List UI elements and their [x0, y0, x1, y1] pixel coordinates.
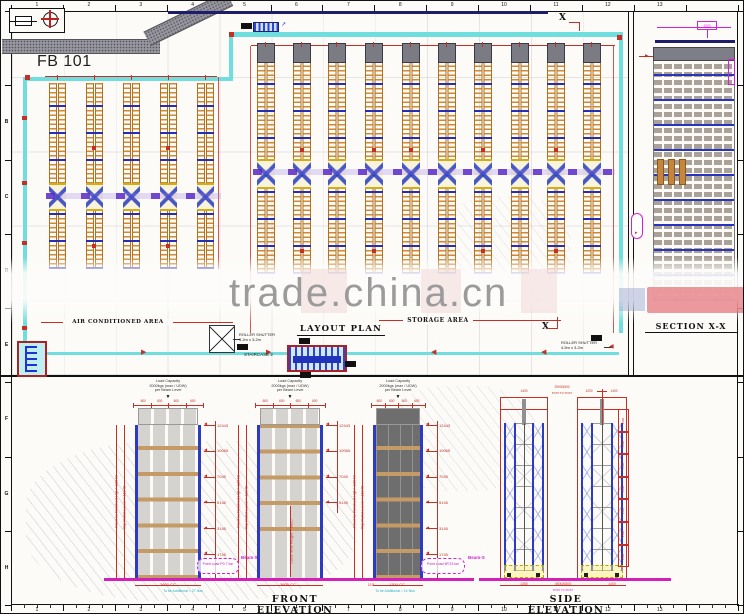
- ruler-letter-left: C: [3, 194, 10, 200]
- detail-symbol-line: [10, 21, 37, 22]
- staircase-2-rail: [293, 356, 341, 363]
- crosshair-icon: [43, 12, 58, 27]
- storage-rack-cap: [474, 43, 492, 63]
- roof-line: [168, 11, 548, 14]
- front-rack: [373, 425, 423, 579]
- tag-chip: [300, 372, 311, 378]
- level-dim-arrow-icon: ◀: [204, 474, 207, 478]
- top-dim-tick: [412, 403, 413, 408]
- level-dim-arrow-icon: ◀: [426, 526, 429, 530]
- top-dim-tick: [151, 403, 152, 408]
- height-dim-text: Top Pallet Level ≈ 11948: [244, 443, 249, 573]
- ruler-number-top: 10: [498, 2, 510, 8]
- level-dim-label: 5145: [339, 500, 348, 505]
- side-top-note: POST TO POST: [544, 391, 580, 395]
- base-post: [615, 573, 619, 577]
- wall-top-storage: [231, 32, 623, 37]
- level-dim-label: 12443: [339, 423, 350, 428]
- ruler-tick-bottom: [11, 604, 12, 611]
- rack-dim-tick: [168, 75, 169, 80]
- level-dim-label: 7045: [339, 474, 348, 479]
- cad-drawing-sheet: FB 101 AIR CONDITIONED AREA LAYOUT PLAN …: [0, 0, 744, 614]
- ac-area-label: AIR CONDITIONED AREA: [63, 319, 173, 325]
- level-dim-arrow-icon: ◀: [326, 474, 329, 478]
- section-mag-capsule: ▸: [631, 213, 643, 239]
- roller-shutter-1-symbol: [209, 325, 235, 353]
- height-dim-text: Top Pallet Level ≈ 11948: [122, 443, 127, 573]
- rack-dim-tick: [336, 42, 337, 47]
- ruler-tick-bottom: [322, 604, 323, 611]
- level-dim-label: 10065: [217, 448, 228, 453]
- side-bottom-dim: 1350: [507, 582, 541, 586]
- tower-frame-left: [581, 423, 593, 571]
- base-post: [536, 573, 540, 577]
- ruler-minor-tick: [595, 604, 596, 608]
- ruler-minor-tick: [76, 604, 77, 608]
- ruler-tick-bottom: [582, 604, 583, 611]
- ruler-letter-left: G: [3, 491, 10, 497]
- point-load-note-1: Point Load P0.7 ton: [197, 558, 239, 574]
- section-roof-line: [655, 40, 735, 43]
- level-dim-arrow-icon: ◀: [326, 500, 329, 504]
- dim-line-ac-right: [218, 77, 219, 269]
- duct-tick: [22, 116, 27, 120]
- ruler-minor-tick: [154, 604, 155, 608]
- top-dim-tick: [168, 403, 169, 408]
- tag-chip: [237, 344, 248, 350]
- side-bottom-dim: 4500/5300: [545, 582, 581, 586]
- rack-marker: [300, 249, 304, 253]
- ruler-tick-right: [737, 457, 743, 458]
- level-dim-line: [215, 421, 216, 579]
- ruler-minor-tick: [543, 604, 544, 608]
- level-dim-arrow-icon: ◀: [204, 551, 207, 555]
- level-dim-label: 1745: [217, 552, 226, 557]
- staircase-west: [17, 341, 47, 377]
- ruler-minor-tick: [699, 604, 700, 608]
- level-dim-label: 7045: [439, 474, 448, 479]
- level-dim-arrow-icon: ◀: [426, 500, 429, 504]
- title-block: [9, 8, 65, 33]
- ruler-tick-bottom: [634, 604, 635, 611]
- side-top-dim: 1400: [504, 389, 544, 393]
- storage-tunnel-band: [253, 169, 615, 175]
- level-dim-arrow-icon: ◀: [426, 448, 429, 452]
- top-dim-label: 600: [137, 399, 149, 403]
- rack-marker: [409, 148, 413, 152]
- ruler-tick-left: [5, 85, 11, 86]
- rack-dim-tick: [555, 42, 556, 47]
- ruler-tick-bottom: [167, 604, 168, 611]
- tower-center-rail: [524, 423, 525, 571]
- ruler-number-bottom: 4: [187, 607, 199, 613]
- ruler-number-top: 12: [602, 2, 614, 8]
- load-capacity-note: Load Capacity2000kgs (max / UDW)per Beam…: [353, 379, 443, 393]
- level-dim-label: 3145: [217, 526, 226, 531]
- side-top-dim: 2900/3600: [544, 385, 580, 389]
- section-title: SECTION X-X: [645, 321, 737, 333]
- ruler-minor-tick: [361, 604, 362, 608]
- ruler-number-bottom: 5: [239, 607, 251, 613]
- ruler-tick-left: [5, 605, 11, 606]
- storage-rack-cap: [402, 43, 420, 63]
- ruler-tick-left: [5, 234, 11, 235]
- ruler-number-bottom: 9: [446, 607, 458, 613]
- ruler-minor-tick: [335, 604, 336, 608]
- top-dim-tick: [203, 403, 204, 408]
- ruler-minor-tick: [673, 604, 674, 608]
- section-mag-drop: [707, 30, 708, 38]
- ruler-minor-tick: [517, 604, 518, 608]
- rack-marker: [92, 244, 96, 248]
- top-dim-label: 600: [292, 399, 304, 403]
- ac-rack-row: [86, 83, 103, 269]
- storage-area-label: STORAGE AREA: [403, 317, 473, 324]
- ruler-tick-right: [737, 531, 743, 532]
- top-dim-label: 600: [398, 399, 410, 403]
- rack-dim-tick: [591, 42, 592, 47]
- section-upright: [679, 159, 686, 185]
- top-dim-tick: [290, 403, 291, 408]
- side-bottom-dim: 1400: [597, 582, 627, 586]
- ruler-minor-tick: [180, 604, 181, 608]
- side-level-box: 1500: [618, 545, 629, 568]
- roller-shutter-2-label: ROLLER SHUTTER4.5m x 3.2m: [561, 341, 597, 351]
- rack-dim-tick: [265, 42, 266, 47]
- roller-shutter-1-label: ROLLER SHUTTER3.2m x 3.2m: [239, 333, 275, 343]
- top-dim-label: 600: [276, 399, 288, 403]
- ruler-minor-tick: [387, 604, 388, 608]
- ruler-tick-left: [5, 457, 11, 458]
- level-dim-label: 10065: [439, 448, 450, 453]
- ruler-minor-tick: [232, 604, 233, 608]
- rack-marker: [300, 148, 304, 152]
- watermark-logo-fragment: [619, 288, 645, 311]
- section-red-arrow-icon: ▶: [645, 53, 648, 59]
- section-top-dim: 1000: [697, 21, 717, 30]
- ruler-tick-bottom: [271, 604, 272, 611]
- ruler-number-top: 6: [290, 2, 302, 8]
- ruler-tick-right: [737, 234, 743, 235]
- ruler-number-top: 7: [342, 2, 354, 8]
- rack-dim-tick: [482, 42, 483, 47]
- ac-rack-row: [197, 83, 214, 269]
- tower-top-post: [522, 399, 526, 425]
- storage-rack-cap: [583, 43, 601, 63]
- rack-marker: [166, 244, 170, 248]
- crosshair-v: [49, 10, 50, 28]
- height-dim-text: Floor to Finished Hgt ≈ 12940: [352, 437, 357, 567]
- leader-line: [233, 339, 240, 340]
- level-dim-arrow-icon: ◀: [204, 500, 207, 504]
- front-rack: [135, 425, 201, 579]
- ruler-number-top: 9: [446, 2, 458, 8]
- ruler-tick-bottom: [426, 604, 427, 611]
- level-dim-label: 7045: [217, 474, 226, 479]
- side-ground-line: [479, 578, 671, 581]
- level-dim-label: 10065: [339, 448, 350, 453]
- side-top-dim: 1200: [577, 389, 601, 393]
- top-dim-label: 600: [373, 399, 385, 403]
- top-dim-tick: [398, 403, 399, 408]
- watermark-text: trade.china.cn: [229, 271, 508, 316]
- tower-center-rail: [602, 423, 603, 571]
- ruler-tick-top: [582, 5, 583, 11]
- ruler-minor-tick: [413, 604, 414, 608]
- ruler-number-bottom: 10: [498, 607, 510, 613]
- level-dim-arrow-icon: ◀: [426, 474, 429, 478]
- height-dim-text: Floor to Finished Hgt ≈ 12940: [114, 437, 119, 567]
- top-dim-tick: [186, 403, 187, 408]
- level-dim-arrow-icon: ◀: [204, 422, 207, 426]
- ruler-minor-tick: [712, 604, 713, 608]
- load-capacity-note: Load Capacity2000kgs (max / UDW)per Beam…: [123, 379, 213, 393]
- rack-marker: [372, 249, 376, 253]
- watermark-smudge: [521, 269, 557, 313]
- rack-top-cells: [376, 408, 420, 425]
- section-leader: [546, 328, 558, 329]
- top-dim-tick: [325, 403, 326, 408]
- section-top-band: [653, 47, 735, 61]
- top-dim-label: 600: [411, 399, 423, 403]
- road-horizontal: [2, 39, 160, 54]
- tower-frame-line: [500, 397, 501, 579]
- ruler-minor-tick: [128, 604, 129, 608]
- rack-top-cells: [260, 408, 320, 425]
- top-dim-tick: [385, 403, 386, 408]
- top-dim-tick: [133, 403, 134, 408]
- front-ground-line: [104, 578, 474, 581]
- ruler-tick-bottom: [115, 604, 116, 611]
- level-dim-label: 5145: [217, 500, 226, 505]
- section-mag-line: [657, 27, 731, 28]
- duct-tick: [22, 181, 27, 185]
- tag-chip: [241, 23, 252, 29]
- tower-frame-right: [532, 423, 544, 571]
- ruler-tick-right: [737, 605, 743, 606]
- rack-marker: [166, 146, 170, 150]
- rack-dim-tick: [94, 75, 95, 80]
- ac-rack-row: [123, 83, 140, 269]
- side-center-line: [602, 389, 603, 423]
- ruler-minor-tick: [206, 604, 207, 608]
- ruler-number-bottom: 6: [290, 607, 302, 613]
- top-dim-tick: [425, 403, 426, 408]
- ac-tunnel-band: [46, 193, 221, 199]
- rack-marker: [372, 148, 376, 152]
- height-dim-text: Top Pallet Level ≈ 11948: [360, 443, 365, 573]
- staircase-north: [253, 22, 279, 32]
- ruler-tick-left: [5, 160, 11, 161]
- duct-arrow-icon: ◀: [431, 349, 436, 356]
- watermark-logo-red-block: [647, 287, 744, 313]
- ruler-number-top: 11: [550, 2, 562, 8]
- rack-dim-tick: [205, 75, 206, 80]
- height-dim-text: Floor to Finished Hgt ≈ 12940: [236, 437, 241, 567]
- side-level-dim: 1500: [621, 492, 625, 614]
- ruler-tick-right: [737, 382, 743, 383]
- ruler-tick-top: [634, 5, 635, 11]
- ruler-letter-left: F: [3, 416, 10, 422]
- staircase-2: [287, 345, 347, 372]
- rack-marker: [554, 148, 558, 152]
- ruler-number-top: 8: [394, 2, 406, 8]
- ruler-minor-tick: [283, 604, 284, 608]
- ruler-number-bottom: 2: [83, 607, 95, 613]
- staircase-steps: [25, 346, 37, 372]
- top-dim-label: 600: [170, 399, 182, 403]
- rack-dim-tick: [373, 42, 374, 47]
- ruler-number-bottom: 11: [550, 607, 562, 613]
- ruler-number-top: 2: [83, 2, 95, 8]
- ruler-tick-left: [5, 531, 11, 532]
- ac-rack-row: [49, 83, 66, 269]
- top-dim-label: 600: [154, 399, 166, 403]
- clear-height-dim: Clear Max Height ≈ 9065: [289, 477, 294, 607]
- load-capacity-note: Load Capacity2000kgs (max / UDW)per Beam…: [245, 379, 335, 393]
- ruler-tick-bottom: [374, 604, 375, 611]
- tower-frame-line: [577, 397, 578, 579]
- top-dim-tick: [255, 403, 256, 408]
- staircase-north-arrow-icon: ↗: [281, 21, 286, 28]
- level-dim-label: 3145: [439, 526, 448, 531]
- rack-dim-tick: [446, 42, 447, 47]
- ruler-minor-tick: [725, 604, 726, 608]
- ruler-minor-tick: [439, 604, 440, 608]
- ruler-number-bottom: 3: [135, 607, 147, 613]
- level-dim-label: 12443: [439, 423, 450, 428]
- top-dim-tick: [308, 403, 309, 408]
- ruler-tick-left: [5, 382, 11, 383]
- base-post: [507, 573, 511, 577]
- ruler-minor-tick: [569, 604, 570, 608]
- level-dim-label: 1745: [439, 552, 448, 557]
- top-dim-tick: [273, 403, 274, 408]
- duct-tick: [22, 326, 27, 330]
- level-dim-arrow-icon: ◀: [426, 551, 429, 555]
- ruler-tick-top: [115, 5, 116, 11]
- rack-marker: [92, 146, 96, 150]
- duct-joint: [617, 35, 622, 40]
- tower-base: [504, 565, 544, 578]
- ruler-tick-right: [737, 11, 743, 12]
- ruler-tick-bottom: [530, 604, 531, 611]
- section-leader: [557, 317, 558, 328]
- ruler-minor-tick: [465, 604, 466, 608]
- point-load-note-2: Point Load 6P.23 ton: [421, 558, 465, 574]
- tag-chip: [591, 335, 602, 341]
- top-dim-label: 600: [386, 399, 398, 403]
- wall-connector: [229, 34, 233, 81]
- layout-plan-title: LAYOUT PLAN: [297, 324, 385, 336]
- ruler-letter-left: E: [3, 342, 10, 348]
- base-dim-line: [373, 585, 423, 586]
- front-note-2: To be Additional ≈ 14 Nos: [361, 589, 429, 593]
- ruler-tick-right: [737, 85, 743, 86]
- level-dim-arrow-icon: ◀: [204, 448, 207, 452]
- ruler-minor-tick: [309, 604, 310, 608]
- storage-rack-cap: [257, 43, 275, 63]
- ruler-minor-tick: [24, 604, 25, 608]
- staircase-2-label: STAIRCASE 2: [244, 352, 273, 357]
- ruler-minor-tick: [491, 604, 492, 608]
- level-dim-arrow-icon: ◀: [326, 448, 329, 452]
- ruler-letter-left: H: [3, 565, 10, 571]
- level-dim-line: [437, 421, 438, 579]
- storage-rack-cap: [438, 43, 456, 63]
- storage-rack-cap: [365, 43, 383, 63]
- capsule-arrow-icon: ▸: [635, 230, 638, 236]
- tower-frame-left: [504, 423, 516, 571]
- section-marker-bottom: X: [542, 322, 549, 332]
- ruler-minor-tick: [647, 604, 648, 608]
- ruler-tick-bottom: [478, 604, 479, 611]
- side-bottom-note: POST TO POST: [545, 588, 581, 592]
- base-dim-line: [135, 585, 201, 586]
- ruler-number-bottom: 12: [602, 607, 614, 613]
- base-post: [584, 573, 588, 577]
- ruler-letter-left: B: [3, 119, 10, 125]
- level-dim-arrow-icon: ◀: [204, 526, 207, 530]
- duct-arrow-icon: ▶: [141, 349, 146, 356]
- ruler-tick-right: [737, 160, 743, 161]
- level-dim-line: [337, 421, 338, 513]
- level-dim-arrow-icon: ◀: [426, 422, 429, 426]
- top-dim-tick: [371, 403, 372, 408]
- level-dim-label: 5145: [439, 500, 448, 505]
- ruler-number-top: 5: [239, 2, 251, 8]
- ruler-number-bottom: 1: [31, 607, 43, 613]
- ruler-tick-bottom: [219, 604, 220, 611]
- ruler-tick-bottom: [686, 604, 687, 611]
- ruler-tick-top: [686, 5, 687, 11]
- section-mag-bracket: [728, 59, 735, 85]
- ac-rack-row: [160, 83, 177, 269]
- storage-rack-cap: [547, 43, 565, 63]
- rack-dim-tick: [57, 75, 58, 80]
- storage-rack-cap: [511, 43, 529, 63]
- ruler-number-top: 3: [135, 2, 147, 8]
- tower-base: [581, 565, 623, 578]
- tower-frame-line: [547, 397, 548, 579]
- ruler-number-bottom: 13: [654, 607, 666, 613]
- level-dim-label: 12443: [217, 423, 228, 428]
- rack-dim-tick: [301, 42, 302, 47]
- duct-joint: [229, 32, 234, 37]
- rack-top-cells: [138, 408, 198, 425]
- beam-label-2: Beam-S: [468, 555, 485, 560]
- top-dim-label: 600: [187, 399, 199, 403]
- tag-chip: [299, 338, 310, 344]
- storage-rack-cap: [293, 43, 311, 63]
- rack-dim-tick: [410, 42, 411, 47]
- level-dim-arrow-icon: ◀: [326, 422, 329, 426]
- plan-elevation-divider: [1, 375, 744, 377]
- duct-joint: [25, 75, 30, 80]
- ruler-minor-tick: [258, 604, 259, 608]
- rack-dim-tick: [131, 75, 132, 80]
- tag-chip: [345, 361, 356, 367]
- ruler-minor-tick: [50, 604, 51, 608]
- ruler-tick-bottom: [63, 604, 64, 611]
- rack-marker: [481, 148, 485, 152]
- section-leader: [579, 22, 580, 31]
- top-dim-label: 600: [259, 399, 271, 403]
- duct-arrow-icon: ◀: [541, 349, 546, 356]
- top-dim-label: 600: [309, 399, 321, 403]
- section-upright: [657, 159, 664, 185]
- ruler-number-top: 13: [654, 2, 666, 8]
